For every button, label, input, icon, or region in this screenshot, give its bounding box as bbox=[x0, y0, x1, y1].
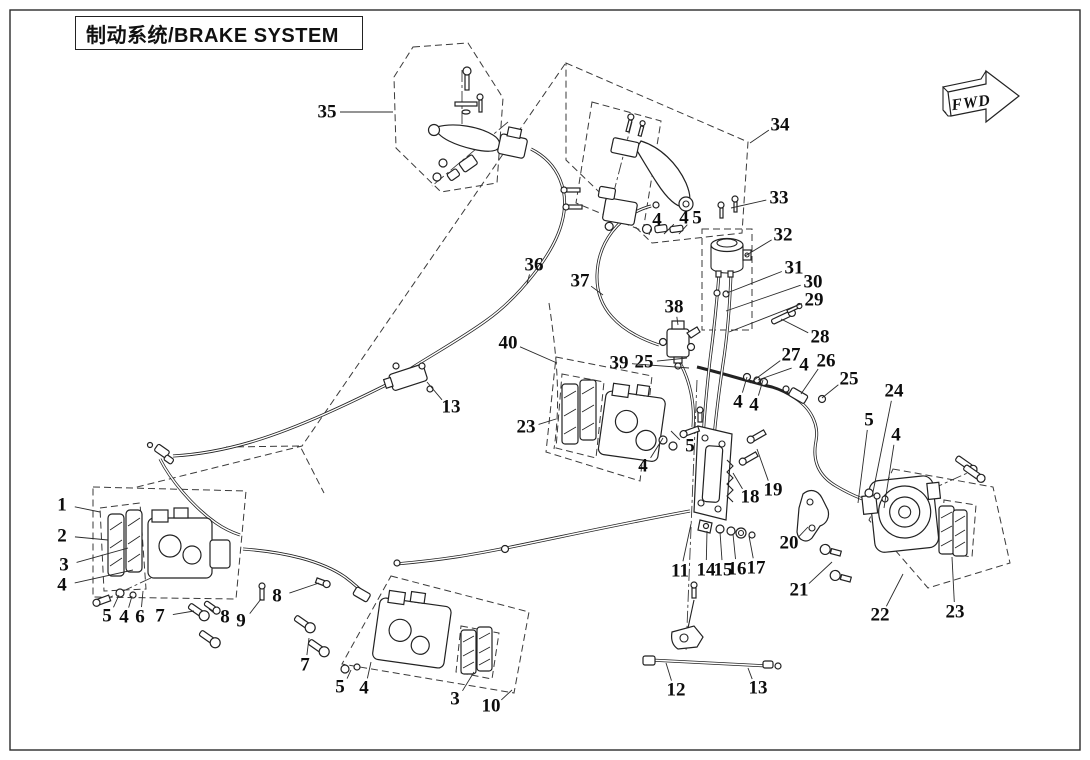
page-title: 制动系统/BRAKE SYSTEM bbox=[76, 19, 339, 48]
caliper-bolt bbox=[307, 637, 332, 658]
hose-clamp bbox=[714, 290, 720, 296]
brake-pad bbox=[108, 514, 124, 576]
left-front-caliper bbox=[92, 508, 331, 650]
proportioning-valve bbox=[660, 321, 701, 369]
brake-pad bbox=[939, 506, 954, 554]
bracket-bolt bbox=[829, 569, 852, 584]
lever-pivot-bolt bbox=[465, 74, 469, 90]
pedal-linkage bbox=[643, 582, 781, 669]
brake-pad bbox=[562, 384, 578, 444]
group-boundaries bbox=[93, 43, 1010, 693]
right-front-caliper bbox=[293, 587, 492, 674]
caliper-bolt bbox=[198, 628, 223, 649]
bracket-bolt bbox=[819, 543, 842, 558]
lever-bracket bbox=[611, 137, 640, 157]
brake-system-exploded-diagram: FWD bbox=[0, 0, 1090, 760]
brake-pad bbox=[580, 380, 596, 440]
elbow-fitting bbox=[788, 387, 808, 404]
fwd-arrow: FWD bbox=[943, 71, 1019, 122]
junction-fitting bbox=[383, 363, 433, 393]
rear-master-cylinder-assembly bbox=[694, 426, 766, 538]
front-brake-lever-assembly bbox=[429, 67, 530, 181]
caliper-body bbox=[372, 597, 452, 668]
master-cylinder-body bbox=[702, 446, 723, 503]
title-box: 制动系统/BRAKE SYSTEM bbox=[75, 16, 363, 50]
page-border bbox=[10, 10, 1080, 750]
elbow-fitting bbox=[353, 587, 371, 603]
rear-hand-master-cylinder bbox=[602, 197, 638, 225]
caliper-bolt bbox=[293, 613, 318, 634]
diagram-stage: FWD 制动系统/BRAKE SYSTEM 123454678987543101… bbox=[0, 0, 1090, 760]
rear-right-caliper bbox=[819, 455, 987, 585]
assembly-axis-lines bbox=[102, 70, 974, 652]
rear-left-caliper bbox=[562, 380, 703, 462]
pipe-union bbox=[502, 546, 509, 553]
brake-pad bbox=[477, 627, 492, 671]
brake-pad bbox=[126, 510, 142, 572]
brake-pad bbox=[461, 630, 476, 674]
